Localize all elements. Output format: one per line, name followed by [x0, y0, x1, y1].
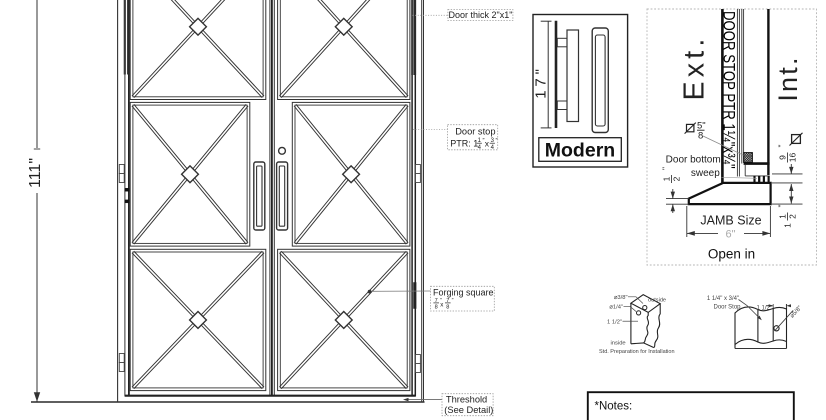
svg-text:Int.: Int.	[773, 55, 803, 101]
svg-text:Modern: Modern	[545, 140, 615, 162]
svg-text:6": 6"	[725, 229, 735, 241]
svg-text:1: 1	[783, 223, 793, 228]
svg-text:”: ”	[496, 139, 498, 145]
svg-text:Door stop: Door stop	[455, 127, 495, 137]
svg-text:Door Stop: Door Stop	[713, 305, 741, 311]
svg-text:2: 2	[671, 176, 681, 181]
svg-text:Ext.: Ext.	[679, 35, 711, 101]
svg-text:Threshold: Threshold	[446, 394, 487, 404]
svg-text:(See Detail): (See Detail)	[444, 405, 493, 415]
svg-text:inside: inside	[611, 341, 626, 347]
svg-text:1 1/4" x 3/4": 1 1/4" x 3/4"	[707, 296, 739, 302]
svg-text:JAMB Size: JAMB Size	[700, 214, 761, 228]
svg-text:x: x	[485, 139, 490, 149]
svg-text:Door thick 2"x1": Door thick 2"x1"	[449, 10, 513, 20]
svg-text:8: 8	[698, 131, 703, 142]
svg-text:16: 16	[787, 153, 797, 163]
svg-text:sweep: sweep	[691, 168, 720, 179]
svg-text:1 1/2": 1 1/2"	[607, 319, 622, 325]
svg-text:1: 1	[777, 214, 787, 219]
svg-text:*Notes:: *Notes:	[595, 401, 633, 413]
svg-text:⌀3/8": ⌀3/8"	[614, 295, 628, 301]
svg-text:9: 9	[777, 155, 787, 160]
svg-text:2: 2	[787, 214, 797, 219]
svg-text:": "	[776, 144, 786, 147]
svg-text:17": 17"	[533, 65, 550, 98]
svg-text:8: 8	[446, 305, 449, 311]
svg-text:Std. Preparation for Installat: Std. Preparation for Installation	[599, 349, 675, 355]
svg-text:8: 8	[435, 305, 438, 311]
svg-text:”: ”	[452, 298, 454, 304]
svg-text:⌀1/4": ⌀1/4"	[609, 304, 623, 310]
svg-text:PTR: 1: PTR: 1	[450, 139, 478, 149]
svg-text:Forging square: Forging square	[433, 288, 494, 298]
svg-text:": "	[776, 204, 786, 207]
svg-text:": "	[660, 167, 670, 170]
svg-text:111": 111"	[27, 158, 44, 188]
svg-text:outside: outside	[648, 297, 666, 303]
svg-text:1: 1	[661, 176, 671, 181]
svg-text:Door bottom: Door bottom	[666, 154, 721, 165]
svg-text:Open in: Open in	[708, 247, 755, 262]
